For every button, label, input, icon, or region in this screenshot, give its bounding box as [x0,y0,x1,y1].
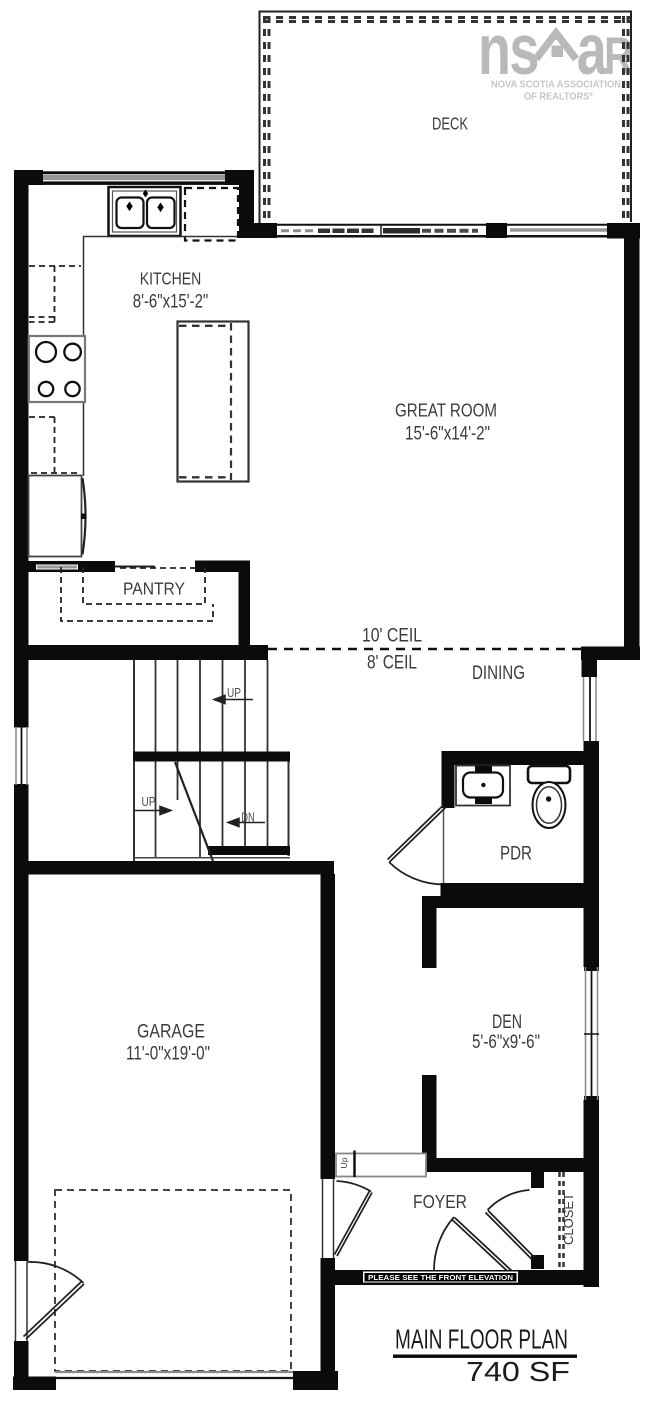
svg-text:PLEASE SEE THE FRONT ELEVATION: PLEASE SEE THE FRONT ELEVATION [368,1275,513,1282]
svg-text:8' CEIL: 8' CEIL [367,652,417,674]
svg-text:GARAGE: GARAGE [137,1022,205,1043]
svg-text:NOVA SCOTIA ASSOCIATION: NOVA SCOTIA ASSOCIATION [491,79,621,91]
svg-text:UP: UP [227,686,241,700]
svg-text:15'-6"x14'-2": 15'-6"x14'-2" [405,423,490,445]
svg-text:CLOSET: CLOSET [562,1193,576,1245]
svg-text:10' CEIL: 10' CEIL [362,625,422,647]
svg-text:11'-0"x19'-0": 11'-0"x19'-0" [126,1043,210,1065]
svg-text:Up: Up [339,1157,349,1168]
svg-text:8'-6"x15'-2": 8'-6"x15'-2" [133,291,209,313]
svg-text:MAIN FLOOR PLAN: MAIN FLOOR PLAN [395,1324,568,1355]
svg-text:UP: UP [142,795,156,809]
svg-text:DECK: DECK [432,114,468,134]
svg-text:740 SF: 740 SF [466,1356,570,1387]
svg-text:PDR: PDR [500,844,532,865]
svg-text:5'-6"x9'-6": 5'-6"x9'-6" [472,1031,540,1053]
svg-text:PANTRY: PANTRY [123,579,185,599]
svg-text:DEN: DEN [492,1012,522,1033]
svg-text:KITCHEN: KITCHEN [140,269,202,289]
svg-text:GREAT ROOM: GREAT ROOM [395,401,497,421]
svg-text:OF REALTORS°: OF REALTORS° [524,91,593,103]
svg-text:FOYER: FOYER [413,1191,467,1212]
svg-text:DINING: DINING [472,662,525,684]
